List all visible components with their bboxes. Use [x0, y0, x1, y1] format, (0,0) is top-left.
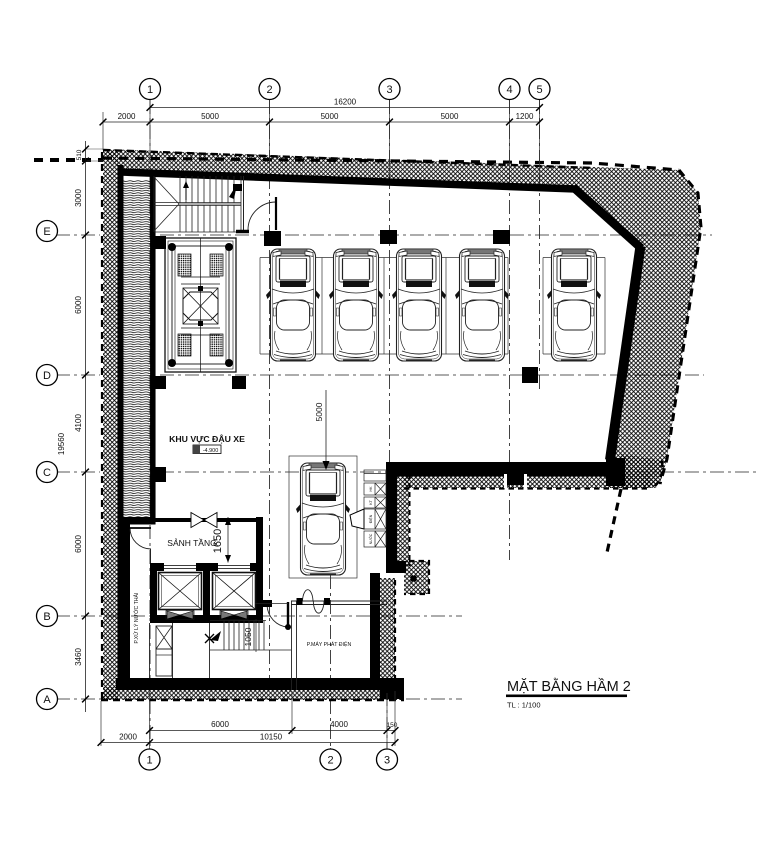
svg-text:5: 5: [536, 84, 542, 96]
svg-text:6000: 6000: [211, 720, 229, 729]
svg-text:P.XỬ LÝ NƯỚC THẢI: P.XỬ LÝ NƯỚC THẢI: [133, 593, 140, 644]
svg-text:5000: 5000: [314, 402, 324, 421]
svg-text:510: 510: [76, 149, 83, 160]
svg-text:P.MÁY PHÁT ĐIỆN: P.MÁY PHÁT ĐIỆN: [307, 640, 352, 648]
svg-text:NƯỚC: NƯỚC: [368, 533, 373, 544]
svg-text:10150: 10150: [260, 733, 283, 742]
svg-text:150: 150: [387, 722, 398, 729]
svg-text:4000: 4000: [330, 720, 348, 729]
svg-text:16200: 16200: [334, 98, 357, 107]
svg-text:2: 2: [266, 84, 272, 96]
svg-text:TL : 1/100: TL : 1/100: [507, 701, 541, 710]
svg-text:KT: KT: [369, 499, 373, 504]
svg-text:B: B: [43, 611, 50, 623]
svg-text:4: 4: [506, 84, 512, 96]
svg-text:3000: 3000: [74, 189, 83, 207]
svg-text:2: 2: [327, 755, 333, 767]
svg-text:1050: 1050: [243, 627, 253, 646]
svg-text:1650: 1650: [212, 529, 224, 553]
svg-text:D: D: [43, 370, 51, 382]
svg-text:A: A: [43, 694, 51, 706]
svg-text:KHU VỰC ĐẬU XE: KHU VỰC ĐẬU XE: [169, 433, 245, 444]
svg-text:2000: 2000: [119, 733, 137, 742]
svg-text:19560: 19560: [57, 432, 66, 455]
svg-text:E: E: [43, 226, 50, 238]
svg-text:SẢNH TẦNG: SẢNH TẦNG: [167, 537, 216, 548]
svg-text:5000: 5000: [321, 112, 339, 121]
svg-text:MẶT BẰNG HẦM 2: MẶT BẰNG HẦM 2: [507, 677, 631, 695]
svg-text:1: 1: [146, 755, 152, 767]
svg-text:5000: 5000: [441, 112, 459, 121]
svg-text:6000: 6000: [74, 535, 83, 553]
svg-text:6000: 6000: [74, 296, 83, 314]
svg-text:3460: 3460: [74, 648, 83, 666]
svg-text:5000: 5000: [201, 112, 219, 121]
svg-text:2000: 2000: [118, 112, 136, 121]
svg-text:1200: 1200: [516, 112, 534, 121]
svg-text:-4.900: -4.900: [203, 448, 219, 454]
svg-text:4100: 4100: [74, 414, 83, 432]
svg-text:ĐIỆN: ĐIỆN: [368, 514, 373, 523]
svg-text:HK: HK: [369, 486, 373, 492]
svg-text:C: C: [43, 467, 51, 479]
svg-text:3: 3: [386, 84, 392, 96]
svg-text:1: 1: [147, 84, 153, 96]
svg-text:3: 3: [384, 755, 390, 767]
